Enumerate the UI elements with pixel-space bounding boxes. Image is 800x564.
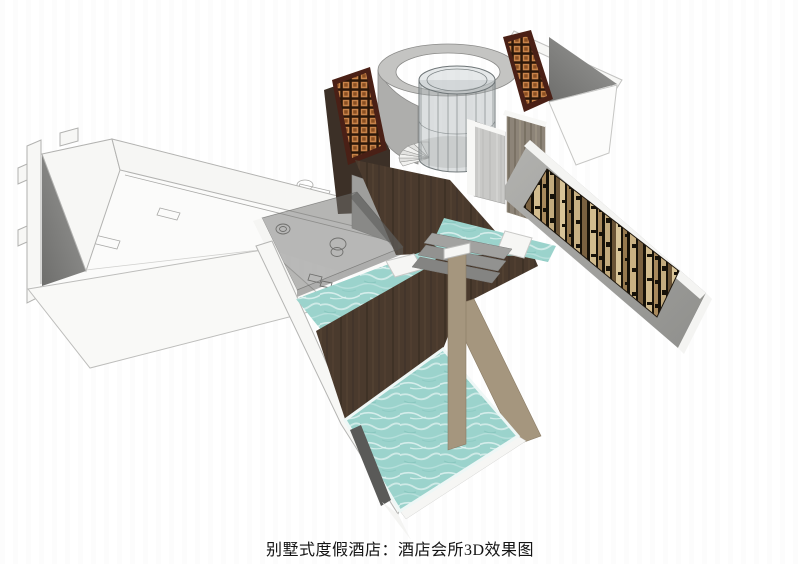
- partition-slab: [467, 119, 505, 204]
- pool-column-fin: [448, 251, 466, 450]
- left-wing-wall-notch: [18, 226, 27, 246]
- left-wing-wall-notch: [18, 164, 27, 184]
- caption: 别墅式度假酒店：酒店会所3D效果图: [0, 536, 800, 560]
- slab-left-edge: [467, 119, 475, 196]
- decorative-striped-panel: [524, 169, 679, 317]
- left-wing-chimney: [60, 128, 78, 146]
- left-wing-outer-wall: [27, 140, 41, 303]
- scene-3d: [0, 0, 800, 564]
- render-canvas: 别墅式度假酒店：酒店会所3D效果图: [0, 0, 800, 564]
